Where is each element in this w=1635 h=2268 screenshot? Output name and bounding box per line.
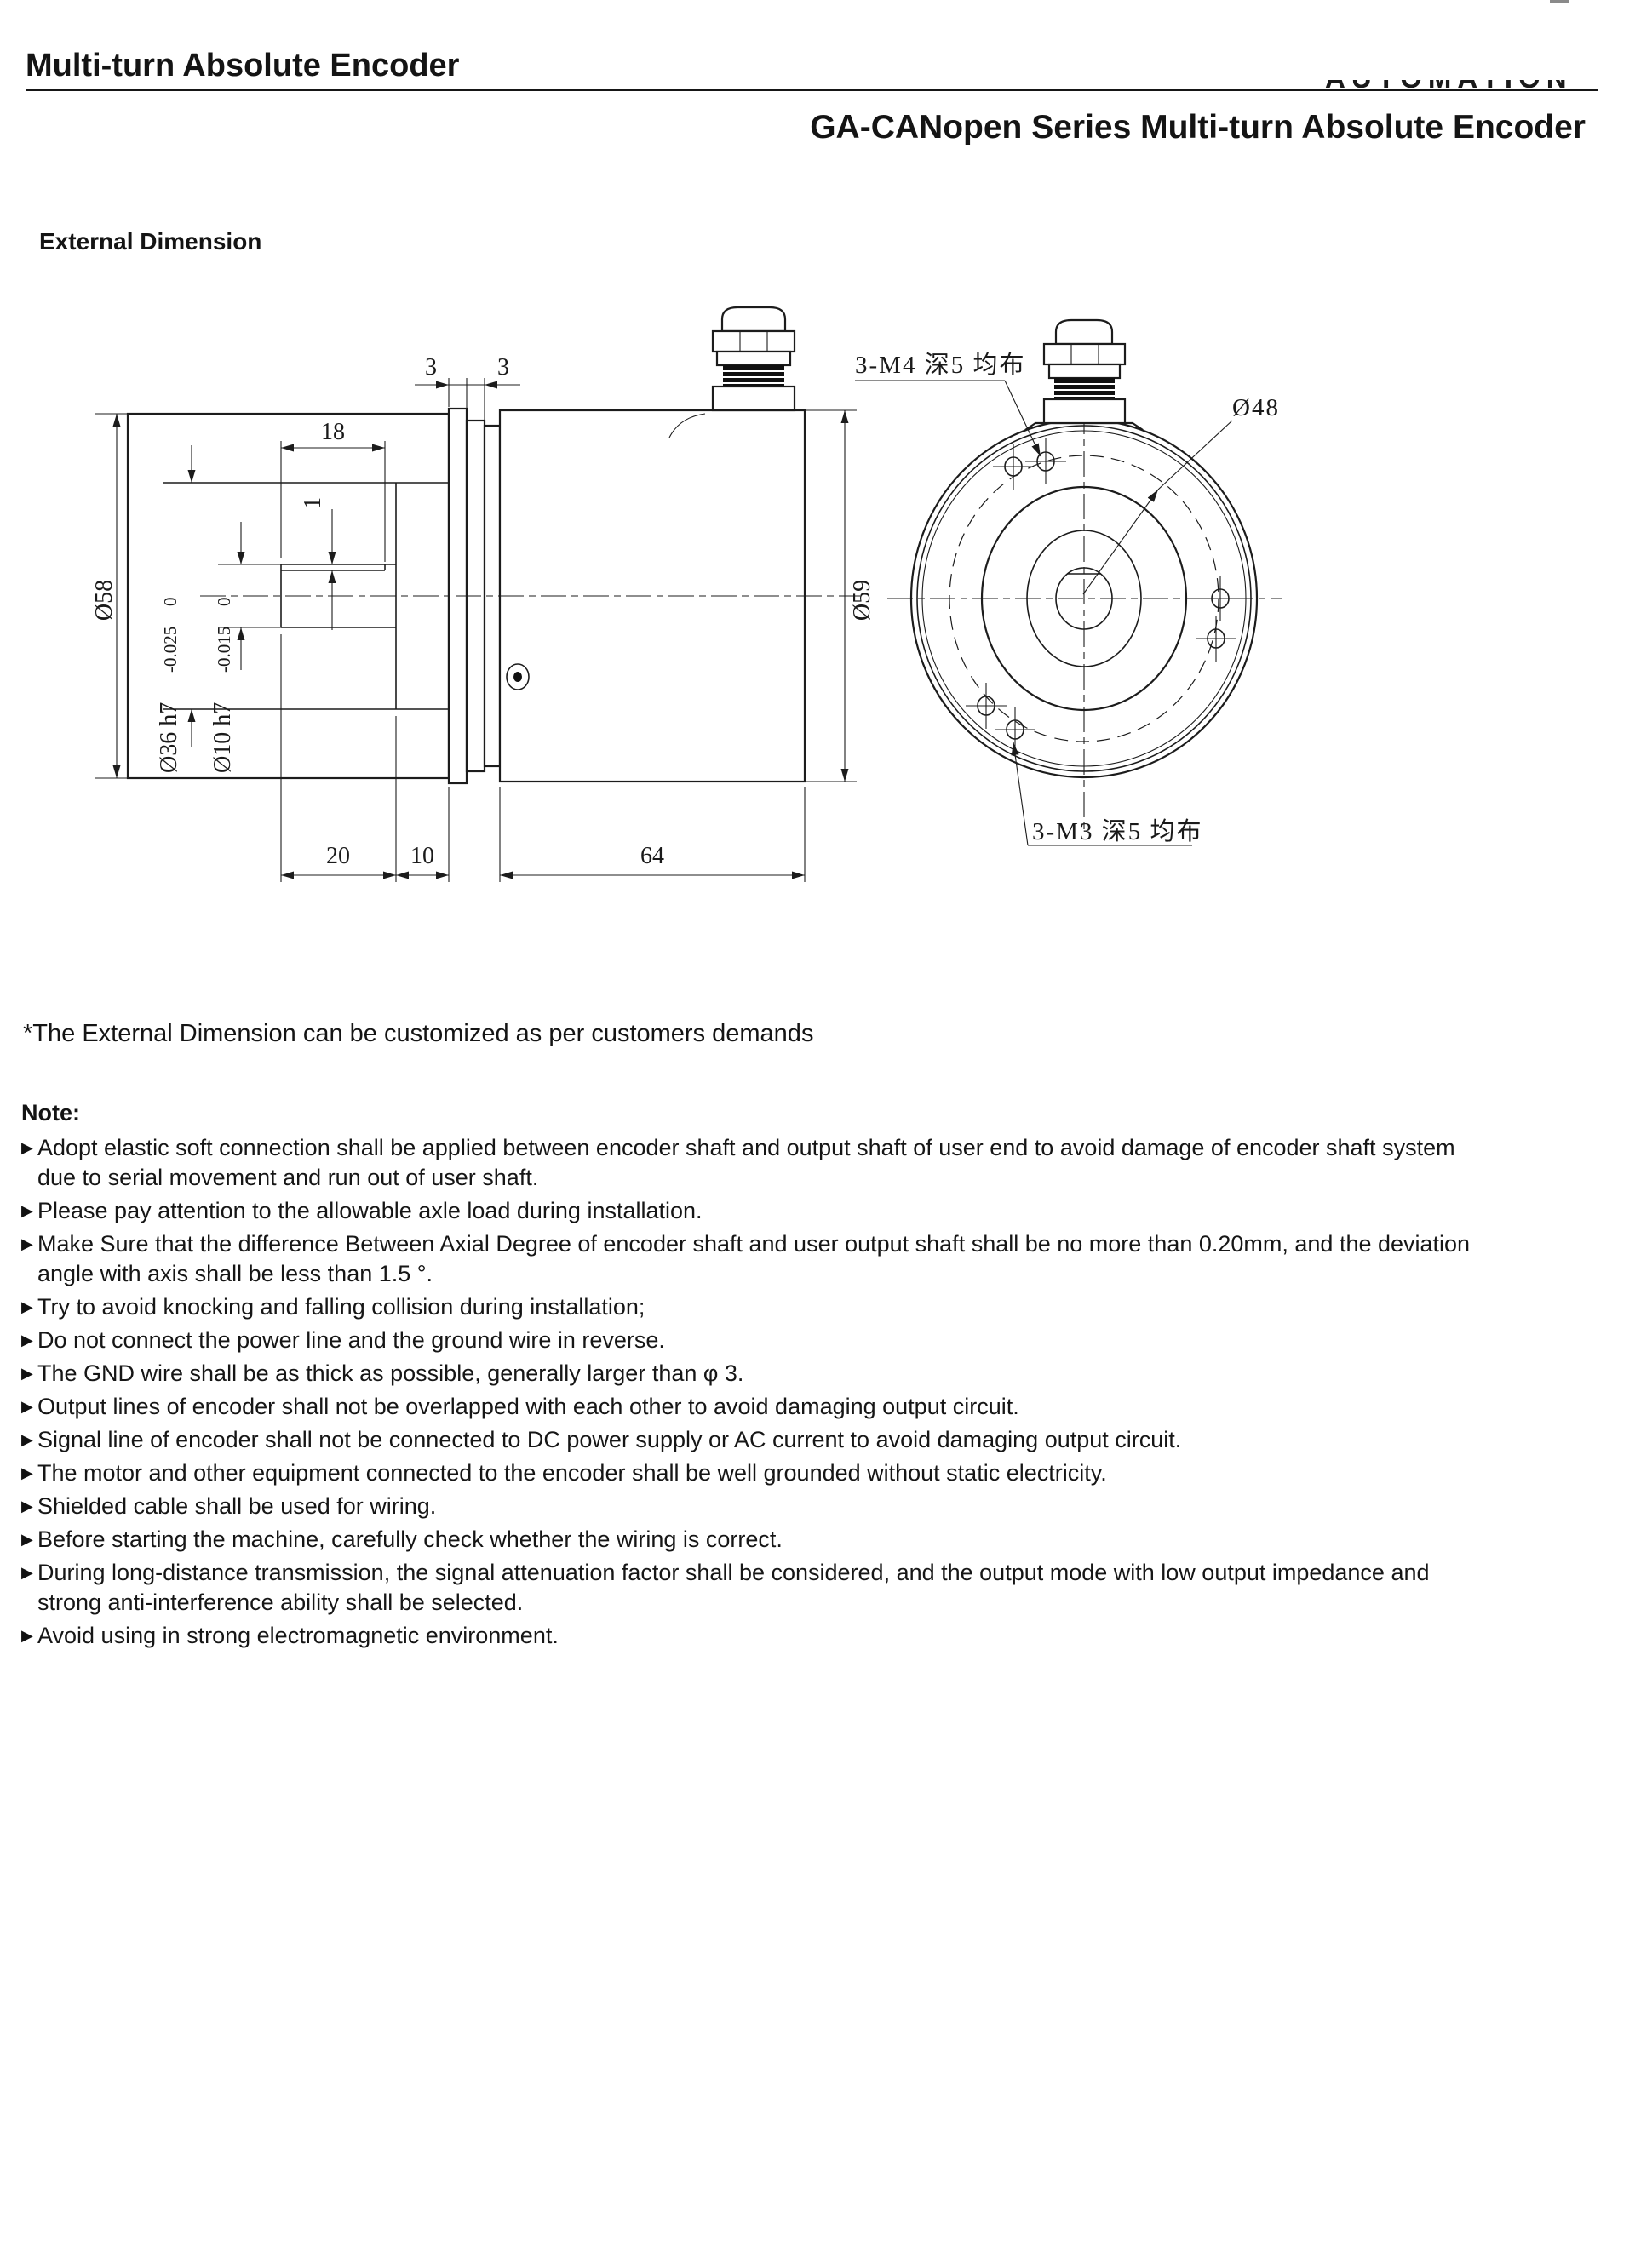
dim-label-dia58: Ø58 xyxy=(91,580,118,621)
dim-label-18: 18 xyxy=(321,419,345,445)
side-view: Ø58 Ø36 h7 -0.025 0 Ø10 h7 -0.015 0 18 xyxy=(91,307,875,882)
note-line: Signal line of encoder shall not be conn… xyxy=(37,1425,1622,1455)
bullet-triangle-icon: ▶ xyxy=(21,1196,37,1226)
note-line: Please pay attention to the allowable ax… xyxy=(37,1196,1622,1226)
dim-label-3-left: 3 xyxy=(425,354,437,381)
note-text: The GND wire shall be as thick as possib… xyxy=(37,1359,1622,1389)
bullet-triangle-icon: ▶ xyxy=(21,1525,37,1555)
note-item: ▶Shielded cable shall be used for wiring… xyxy=(21,1492,1622,1521)
note-text: Make Sure that the difference Between Ax… xyxy=(37,1229,1622,1289)
note-text: Try to avoid knocking and falling collis… xyxy=(37,1292,1622,1322)
note-item: ▶The motor and other equipment connected… xyxy=(21,1458,1622,1488)
note-line: Avoid using in strong electromagnetic en… xyxy=(37,1621,1622,1651)
note-item: ▶Adopt elastic soft connection shall be … xyxy=(21,1133,1622,1193)
front-mounting-holes xyxy=(966,438,1241,753)
note-text: Signal line of encoder shall not be conn… xyxy=(37,1425,1622,1455)
note-line: angle with axis shall be less than 1.5 °… xyxy=(37,1259,1622,1289)
cable-gland-side xyxy=(713,307,795,410)
notes-heading: Note: xyxy=(21,1100,80,1126)
dim-label-dia10: Ø10 h7 xyxy=(209,702,236,773)
dim-label-dia36: Ø36 h7 xyxy=(156,702,182,773)
bullet-triangle-icon: ▶ xyxy=(21,1621,37,1651)
note-text: Avoid using in strong electromagnetic en… xyxy=(37,1621,1622,1651)
note-item: ▶The GND wire shall be as thick as possi… xyxy=(21,1359,1622,1389)
label-m3-holes: 3-M3 深5 均布 xyxy=(1032,817,1202,845)
note-line: During long-distance transmission, the s… xyxy=(37,1558,1622,1588)
note-text: Output lines of encoder shall not be ove… xyxy=(37,1392,1622,1422)
note-item: ▶During long-distance transmission, the … xyxy=(21,1558,1622,1618)
dim-label-64: 64 xyxy=(640,843,664,869)
note-text: Adopt elastic soft connection shall be a… xyxy=(37,1133,1622,1193)
note-line: Adopt elastic soft connection shall be a… xyxy=(37,1133,1622,1163)
note-text: During long-distance transmission, the s… xyxy=(37,1558,1622,1618)
dim-label-dia36-tol-lower: -0.025 xyxy=(160,627,181,673)
dim-label-3-right: 3 xyxy=(497,354,509,381)
note-line: Try to avoid knocking and falling collis… xyxy=(37,1292,1622,1322)
note-item: ▶Please pay attention to the allowable a… xyxy=(21,1196,1622,1226)
dim-label-dia10-tol-lower: -0.015 xyxy=(214,627,234,673)
dim-label-dia59: Ø59 xyxy=(849,580,875,621)
note-item: ▶Try to avoid knocking and falling colli… xyxy=(21,1292,1622,1322)
note-line: strong anti-interference ability shall b… xyxy=(37,1588,1622,1618)
note-item: ▶Signal line of encoder shall not be con… xyxy=(21,1425,1622,1455)
note-text: Please pay attention to the allowable ax… xyxy=(37,1196,1622,1226)
bullet-triangle-icon: ▶ xyxy=(21,1492,37,1521)
datasheet-page: Multi-turn Absolute Encoder AUTOMATION G… xyxy=(0,0,1635,2268)
label-dia48: Ø48 xyxy=(1232,394,1280,421)
note-line: Make Sure that the difference Between Ax… xyxy=(37,1229,1622,1259)
dim-label-dia36-tol-upper: 0 xyxy=(160,598,181,607)
customize-note: *The External Dimension can be customize… xyxy=(23,1020,813,1048)
note-line: Output lines of encoder shall not be ove… xyxy=(37,1392,1622,1422)
bullet-triangle-icon: ▶ xyxy=(21,1425,37,1455)
note-line: Before starting the machine, carefully c… xyxy=(37,1525,1622,1555)
note-item: ▶Before starting the machine, carefully … xyxy=(21,1525,1622,1555)
note-text: The motor and other equipment connected … xyxy=(37,1458,1622,1488)
note-text: Before starting the machine, carefully c… xyxy=(37,1525,1622,1555)
dim-label-10: 10 xyxy=(410,843,434,869)
dim-label-dia10-tol-upper: 0 xyxy=(214,598,234,607)
bullet-triangle-icon: ▶ xyxy=(21,1359,37,1389)
note-line: Do not connect the power line and the gr… xyxy=(37,1326,1622,1355)
bullet-triangle-icon: ▶ xyxy=(21,1133,37,1163)
bullet-triangle-icon: ▶ xyxy=(21,1392,37,1422)
dim-label-20: 20 xyxy=(326,843,350,869)
note-line: due to serial movement and run out of us… xyxy=(37,1163,1622,1193)
note-line: Shielded cable shall be used for wiring. xyxy=(37,1492,1622,1521)
note-item: ▶Make Sure that the difference Between A… xyxy=(21,1229,1622,1289)
note-text: Do not connect the power line and the gr… xyxy=(37,1326,1622,1355)
note-item: ▶Avoid using in strong electromagnetic e… xyxy=(21,1621,1622,1651)
bullet-triangle-icon: ▶ xyxy=(21,1292,37,1322)
dim-label-1: 1 xyxy=(300,497,326,509)
note-item: ▶Output lines of encoder shall not be ov… xyxy=(21,1392,1622,1422)
note-text: Shielded cable shall be used for wiring. xyxy=(37,1492,1622,1521)
label-m4-holes: 3-M4 深5 均布 xyxy=(855,351,1025,379)
cable-gland-front xyxy=(1025,320,1143,430)
note-line: The motor and other equipment connected … xyxy=(37,1458,1622,1488)
bullet-triangle-icon: ▶ xyxy=(21,1326,37,1355)
bullet-triangle-icon: ▶ xyxy=(21,1229,37,1259)
bullet-triangle-icon: ▶ xyxy=(21,1458,37,1488)
note-item: ▶Do not connect the power line and the g… xyxy=(21,1326,1622,1355)
bullet-triangle-icon: ▶ xyxy=(21,1558,37,1588)
front-view: 3-M4 深5 均布 Ø48 3-M3 深5 均布 xyxy=(855,320,1282,845)
note-line: The GND wire shall be as thick as possib… xyxy=(37,1359,1622,1389)
notes-list: ▶Adopt elastic soft connection shall be … xyxy=(21,1133,1622,1654)
